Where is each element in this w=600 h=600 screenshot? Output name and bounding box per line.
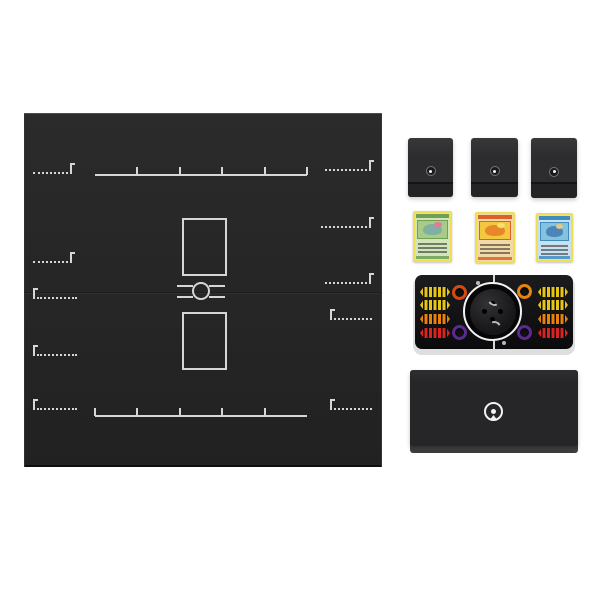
bench-zone-line [95,174,307,176]
ring-die [452,325,467,340]
card-footer-band [478,257,512,260]
damage-counter-stack [420,300,450,310]
zone-marker-dotted-line [321,226,367,228]
pokeball-emblem-icon [490,166,500,176]
coin-well-ring [463,282,522,341]
stadium-zone-outline [182,218,227,276]
pokeball-emblem-icon [549,167,559,177]
card-inner [477,214,513,261]
card-attack-text-line [480,244,510,246]
bench-zone-tick [306,167,308,175]
card-attack-text-line [480,248,510,250]
venusaur-card [413,211,452,262]
bench-zone-tick [221,408,223,416]
deck-box [408,138,453,197]
card-inner [538,215,571,260]
card-footer-band [416,256,449,259]
bench-zone-tick [136,408,138,416]
mini-pokeball-icon [476,281,480,285]
dice-puck [470,289,516,335]
card-name-bar [416,214,449,218]
mini-pokeball-icon [502,341,506,345]
zone-marker-dotted-line [334,318,372,320]
bench-zone-tick [94,408,96,416]
center-coin-circle [192,282,210,300]
zone-marker-dotted-line [37,354,77,356]
bench-zone-tick [179,408,181,416]
card-inner [415,213,450,260]
pokeball-emblem-icon [484,402,503,421]
zone-marker-dotted-line [33,172,68,174]
zone-marker-dotted-line [325,169,367,171]
bench-zone-tick [264,408,266,416]
card-name-bar [539,216,570,220]
zone-marker-corner-cap [70,252,75,254]
zone-marker-corner-cap [369,160,374,162]
deck-box-base [408,182,453,197]
die-notch [486,291,503,308]
zone-marker-dotted-line [325,282,367,284]
bench-zone-tick [264,167,266,175]
blastoise-card [536,213,573,262]
bench-zone-line [95,415,307,417]
damage-counter-stack [420,328,450,338]
deck-box-base [471,182,518,197]
pokeball-notch [491,415,497,419]
card-footer-band [539,256,570,259]
pokeball-center-dot [493,170,496,173]
bench-zone-tick [179,167,181,175]
center-divider-line [209,285,225,287]
zone-marker-dotted-line [33,261,68,263]
storage-box [410,370,578,446]
center-divider-line [177,296,193,298]
ring-die [517,284,532,299]
damage-counter-stack [538,300,568,310]
center-divider-line [209,296,225,298]
zone-marker-dotted-line [334,408,372,410]
zone-marker-corner-cap [33,288,38,290]
deck-box [531,138,577,198]
card-name-bar [478,215,512,219]
damage-counter-stack [420,287,450,297]
zone-marker-corner-cap [33,399,38,401]
card-art-window [417,220,448,239]
card-attack-text-line [418,251,447,253]
zone-marker-corner-cap [369,273,374,275]
pokeball-emblem-icon [426,166,436,176]
damage-counter-stack [538,287,568,297]
charizard-card [475,212,515,263]
zone-marker-dotted-line [37,408,77,410]
zone-marker-corner-cap [70,163,75,165]
damage-counter-stack [538,314,568,324]
bench-zone-tick [136,167,138,175]
card-attack-text-line [418,247,447,249]
stadium-zone-outline [182,312,227,370]
card-art-window [479,221,511,240]
zone-marker-corner-cap [330,309,335,311]
pokeball-center-dot [491,409,496,414]
card-attack-text-line [418,243,447,245]
ring-die [452,285,467,300]
bench-zone-tick [221,167,223,175]
pokeball-center-dot [429,170,432,173]
pokeball-center-dot [553,170,556,173]
product-photo [0,0,600,600]
zone-marker-corner-cap [33,345,38,347]
damage-counter-stack [538,328,568,338]
card-art-window [540,222,569,241]
die-notch [486,319,503,336]
ring-die [517,325,532,340]
card-attack-text-line [541,253,568,255]
counter-tray [415,275,573,349]
deck-box [471,138,518,197]
zone-marker-corner-cap [330,399,335,401]
die-pip [482,309,487,314]
playmat [24,113,382,467]
die-pip [498,309,503,314]
center-divider-line [177,285,193,287]
deck-box-base [531,182,577,198]
card-attack-text-line [541,245,568,247]
card-attack-text-line [541,249,568,251]
zone-marker-dotted-line [37,297,77,299]
damage-counter-stack [420,314,450,324]
zone-marker-corner-cap [369,217,374,219]
card-attack-text-line [480,252,510,254]
